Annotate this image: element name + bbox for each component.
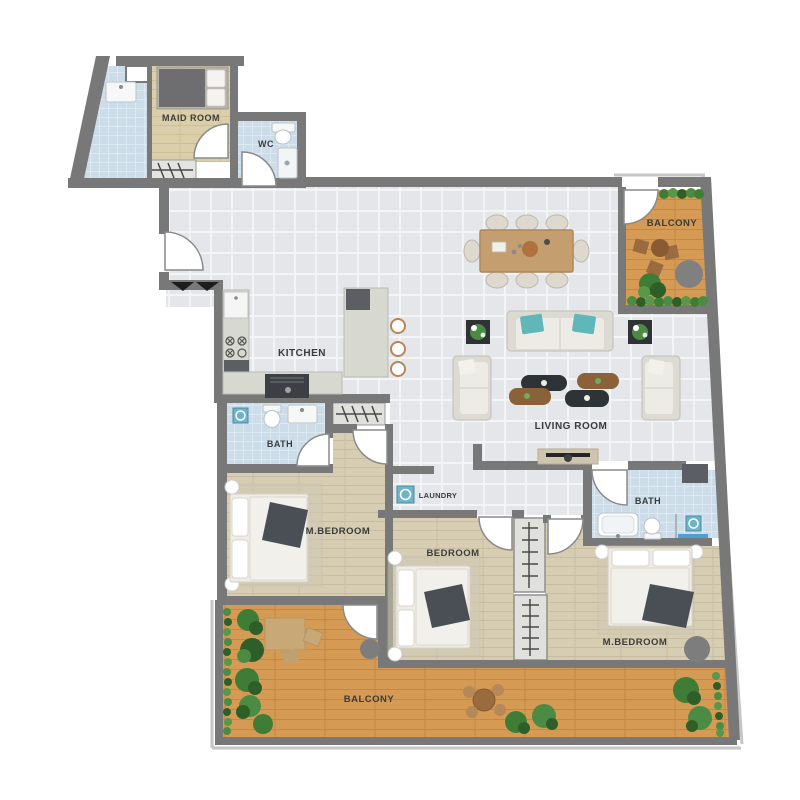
bedroom-label: BEDROOM <box>426 548 479 559</box>
bath2-vanity <box>682 464 708 483</box>
balcony2-label: BALCONY <box>344 694 395 705</box>
wc-label: WC <box>258 139 274 149</box>
wall-niche <box>126 66 148 82</box>
laundry-label: LAUNDRY <box>419 491 458 500</box>
side-table <box>684 636 710 662</box>
m-bedroom2-label: M.BEDROOM <box>603 637 668 648</box>
sofa-left <box>453 356 491 420</box>
teal-pillow <box>572 314 596 335</box>
teal-pillow <box>520 314 544 335</box>
bar-stools <box>391 319 405 376</box>
sofa-right <box>642 356 680 420</box>
kitchen-sink <box>224 292 248 318</box>
bath-mat <box>678 534 708 538</box>
bath1-label: BATH <box>267 439 293 449</box>
balcony1-label: BALCONY <box>647 218 698 229</box>
living-room-label: LIVING ROOM <box>535 421 608 432</box>
bath2-label: BATH <box>635 496 661 506</box>
m-bedroom1-label: M.BEDROOM <box>306 526 371 537</box>
kitchen-label: KITCHEN <box>278 348 326 359</box>
floor-plan: MAID ROOM WC KITCHEN BATH LIVING ROOM LA… <box>0 0 800 800</box>
sofa-main <box>507 311 613 351</box>
round-table <box>675 260 703 288</box>
round-table <box>360 639 380 659</box>
maid-room-label: MAID ROOM <box>162 113 220 123</box>
bed-bedroom <box>388 551 480 661</box>
laundry-fixture <box>397 486 414 503</box>
tv-console <box>538 449 598 464</box>
